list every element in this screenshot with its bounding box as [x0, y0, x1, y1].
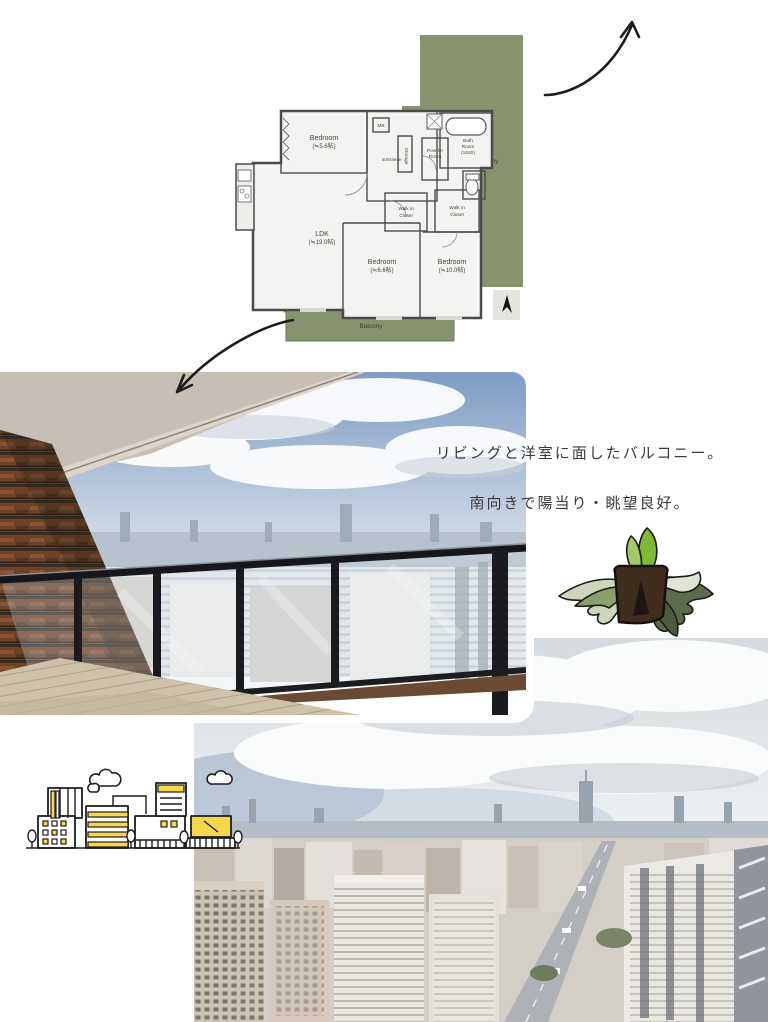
city-buildings-icon [18, 758, 248, 858]
floor-plan-image: Roof Balcony Balcony [230, 6, 546, 354]
caption-line-1: リビングと洋室に面したバルコニー。 [425, 444, 735, 464]
balcony-label: Balcony [359, 323, 383, 330]
room-label-bath-2: Room [462, 144, 475, 150]
room-label-storage: Storage [403, 148, 409, 165]
page-root: Roof Balcony Balcony [0, 0, 768, 1022]
room-area-bedroom-c: (≒10.0帖) [439, 266, 466, 274]
room-label-ldk: LDK [315, 231, 329, 238]
room-label-wic-a-2: Closet [399, 213, 413, 219]
balcony-view-photo [0, 372, 526, 715]
room-label-mb: MB [377, 123, 384, 129]
room-area-bath: (1620) [461, 150, 475, 156]
room-label-bedroom-b: Bedroom [368, 259, 397, 266]
balcony-photo-frame [0, 372, 534, 723]
arrow-up-icon [535, 5, 650, 105]
room-area-bedroom-a: (≒5.6帖) [312, 142, 335, 150]
photo-caption: リビングと洋室に面したバルコニー。 南向きで陽当り・眺望良好。 [425, 444, 735, 514]
room-label-powder-2: Room [429, 154, 442, 160]
room-label-bedroom-a: Bedroom [310, 135, 339, 142]
north-compass-icon [493, 290, 520, 320]
room-area-bedroom-b: (≒6.6帖) [370, 266, 393, 274]
room-label-wic-b-2: Closet [450, 212, 464, 218]
plant-icon [545, 524, 729, 648]
room-label-powder-1: Powder [427, 148, 444, 154]
room-label-wic-a-1: Walk in [398, 206, 414, 212]
room-label-bath-1: Bath [463, 138, 473, 144]
caption-line-2: 南向きで陽当り・眺望良好。 [425, 494, 735, 514]
room-label-entrance: Entrance [382, 157, 402, 163]
arrow-down-icon [165, 308, 300, 400]
room-area-ldk: (≒19.0帖) [309, 238, 336, 246]
room-label-bedroom-c: Bedroom [438, 259, 467, 266]
room-label-wic-b-1: Walk in [449, 205, 465, 211]
